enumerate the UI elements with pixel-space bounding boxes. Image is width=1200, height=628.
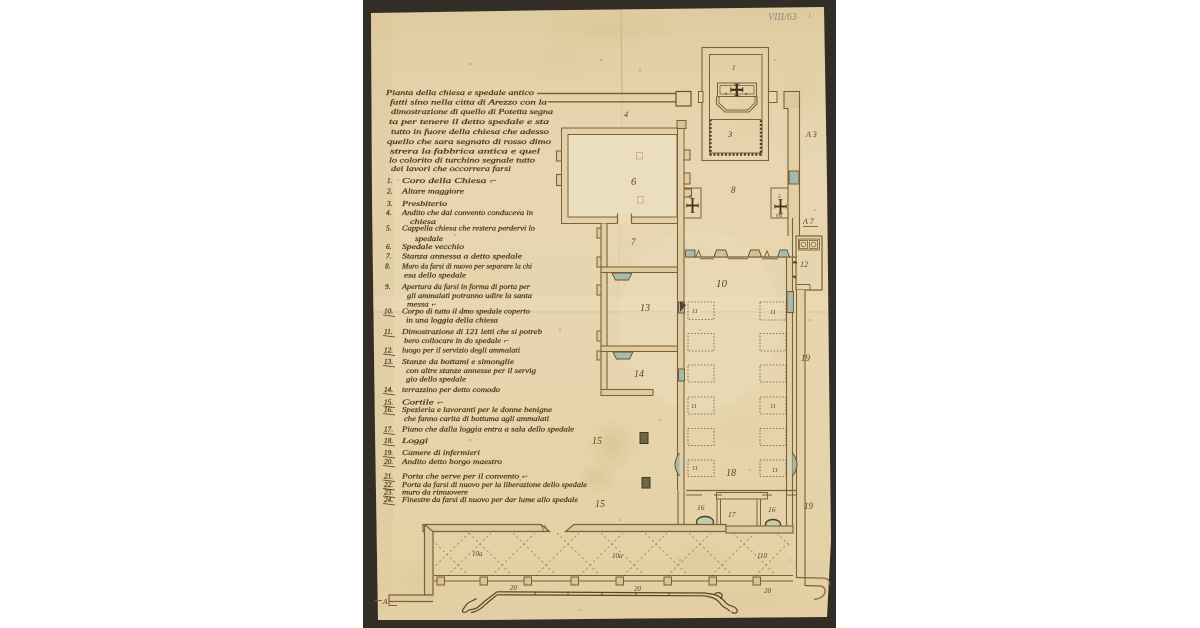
svg-text:luogo per il servizio degli am: luogo per il servizio degli ammalati bbox=[402, 346, 520, 355]
svg-text:3.: 3. bbox=[386, 199, 393, 208]
svg-text:1.: 1. bbox=[387, 176, 393, 185]
svg-text:dimostrazione di quello di Pot: dimostrazione di quello di Potetta segna bbox=[391, 107, 553, 116]
svg-text:1: 1 bbox=[808, 12, 812, 20]
svg-text:PIII: PIII bbox=[775, 213, 783, 218]
svg-text:Corpo di tutto il dmo spedale: Corpo di tutto il dmo spedale coperto bbox=[402, 307, 530, 316]
svg-text:13.: 13. bbox=[384, 357, 393, 366]
svg-text:17.: 17. bbox=[384, 425, 393, 434]
svg-text:19: 19 bbox=[801, 353, 811, 363]
svg-text:19.: 19. bbox=[384, 448, 393, 457]
svg-text:14.: 14. bbox=[384, 385, 393, 394]
svg-text:20.: 20. bbox=[384, 457, 393, 466]
svg-text:16: 16 bbox=[768, 505, 776, 514]
svg-text:Stanze da bottami e simonglie: Stanze da bottami e simonglie bbox=[402, 357, 515, 366]
svg-text:10a: 10a bbox=[472, 550, 483, 558]
svg-text:10.: 10. bbox=[384, 307, 393, 316]
svg-text:Presbiterio: Presbiterio bbox=[401, 199, 448, 208]
svg-text:ta per tenere il detto spedale: ta per tenere il detto spedale e sta bbox=[389, 117, 550, 126]
svg-text:1: 1 bbox=[732, 64, 736, 72]
svg-text:bero collocare in do spedale: bero collocare in do spedale ⌐ bbox=[404, 336, 509, 345]
svg-text:20: 20 bbox=[510, 584, 518, 592]
svg-text:8.: 8. bbox=[385, 262, 391, 271]
svg-text:11: 11 bbox=[692, 465, 698, 472]
svg-text:A: A bbox=[382, 597, 388, 606]
svg-text:18.: 18. bbox=[384, 436, 393, 445]
svg-text:che fanno carita di bottuma ag: che fanno carita di bottuma agli ammalat… bbox=[404, 414, 549, 423]
svg-text:VIII/63: VIII/63 bbox=[768, 12, 797, 23]
svg-text:12.: 12. bbox=[384, 346, 393, 355]
svg-text:Spezieria e lavoranti per le d: Spezieria e lavoranti per le donne benig… bbox=[402, 405, 553, 414]
svg-text:20: 20 bbox=[764, 587, 772, 595]
svg-text:Altare maggiore: Altare maggiore bbox=[401, 187, 465, 196]
svg-text:17: 17 bbox=[728, 510, 736, 519]
svg-text:18: 18 bbox=[726, 468, 736, 479]
svg-text:6.: 6. bbox=[386, 242, 392, 251]
svg-text:esa dello spedale: esa dello spedale bbox=[404, 271, 467, 280]
svg-text:13: 13 bbox=[640, 303, 650, 314]
svg-text:fatti sino nella citta di Arez: fatti sino nella citta di Arezzo con la bbox=[390, 98, 548, 107]
svg-text:7.: 7. bbox=[386, 252, 392, 261]
svg-text:19: 19 bbox=[804, 501, 814, 511]
svg-text:Apertura da farsi in forma di: Apertura da farsi in forma di porta per bbox=[401, 282, 530, 291]
svg-text:6: 6 bbox=[631, 177, 637, 188]
svg-text:8: 8 bbox=[731, 185, 736, 195]
svg-text:gio dello spedale: gio dello spedale bbox=[406, 375, 467, 384]
svg-text:Coro della Chiesa ⌐: Coro della Chiesa ⌐ bbox=[402, 176, 497, 185]
svg-text:11: 11 bbox=[772, 467, 778, 474]
svg-text:11.: 11. bbox=[384, 327, 393, 336]
svg-text:quello che sara segnato di ros: quello che sara segnato di rosso dimo bbox=[387, 137, 552, 146]
svg-text:Pianta della chiesa e spedale: Pianta della chiesa e spedale antico bbox=[385, 88, 535, 97]
svg-text:A 7: A 7 bbox=[802, 217, 815, 226]
svg-text:10a: 10a bbox=[612, 552, 623, 560]
svg-text:11: 11 bbox=[691, 403, 697, 410]
svg-text:3: 3 bbox=[727, 129, 732, 139]
svg-text:110: 110 bbox=[757, 552, 767, 560]
svg-text:A 3: A 3 bbox=[805, 130, 817, 139]
svg-text:Andito che dal convento conduc: Andito che dal convento conduceva in bbox=[401, 208, 534, 217]
svg-text:Camere di infermieri: Camere di infermieri bbox=[402, 448, 480, 457]
svg-text:9.: 9. bbox=[385, 282, 391, 291]
svg-text:Finestre da farsi di nuovo per: Finestre da farsi di nuovo per dar lume … bbox=[401, 495, 579, 504]
svg-text:Andito detto borgo maestro: Andito detto borgo maestro bbox=[401, 457, 503, 466]
svg-text:in una loggia della chiesa: in una loggia della chiesa bbox=[406, 316, 498, 325]
svg-text:4.: 4. bbox=[386, 208, 392, 217]
svg-text:16: 16 bbox=[697, 503, 705, 512]
svg-text:5: 5 bbox=[778, 194, 781, 200]
svg-text:14: 14 bbox=[634, 369, 644, 380]
svg-text:10: 10 bbox=[716, 278, 728, 290]
svg-text:Spedale vecchio: Spedale vecchio bbox=[402, 242, 464, 251]
svg-text:terrazzino per detto comodo: terrazzino per detto comodo bbox=[402, 385, 500, 394]
svg-text:Muro da farsi di nuovo per sep: Muro da farsi di nuovo per separare la c… bbox=[401, 262, 532, 271]
svg-text:5.: 5. bbox=[386, 224, 392, 233]
svg-text:Cappella chiesa che restera pe: Cappella chiesa che restera perdervi lo bbox=[402, 224, 535, 233]
svg-text:11: 11 bbox=[770, 403, 776, 410]
svg-text:2.: 2. bbox=[387, 187, 393, 196]
svg-text:tutto in fuore della chiesa ch: tutto in fuore della chiesa che adesso bbox=[391, 127, 550, 136]
svg-text:15: 15 bbox=[595, 499, 605, 510]
svg-text:11: 11 bbox=[692, 308, 698, 315]
svg-text:dei lavori che occorrera farsi: dei lavori che occorrera farsi bbox=[391, 164, 511, 173]
svg-text:Stanza annessa a detto spedale: Stanza annessa a detto spedale bbox=[402, 252, 523, 261]
svg-text:Loggi: Loggi bbox=[400, 436, 428, 445]
svg-text:strera la fabbrica antica e qu: strera la fabbrica antica e quel bbox=[390, 147, 540, 156]
svg-text:12: 12 bbox=[800, 260, 808, 269]
svg-text:11: 11 bbox=[770, 309, 776, 316]
svg-text:Piano che dalla loggia entra a: Piano che dalla loggia entra a sala dell… bbox=[401, 425, 575, 434]
svg-text:Dimostrazione di 121 letti che: Dimostrazione di 121 letti che si potreb bbox=[401, 327, 543, 336]
svg-text:7: 7 bbox=[631, 237, 636, 247]
svg-text:15: 15 bbox=[592, 436, 602, 447]
svg-text:20: 20 bbox=[634, 585, 642, 593]
